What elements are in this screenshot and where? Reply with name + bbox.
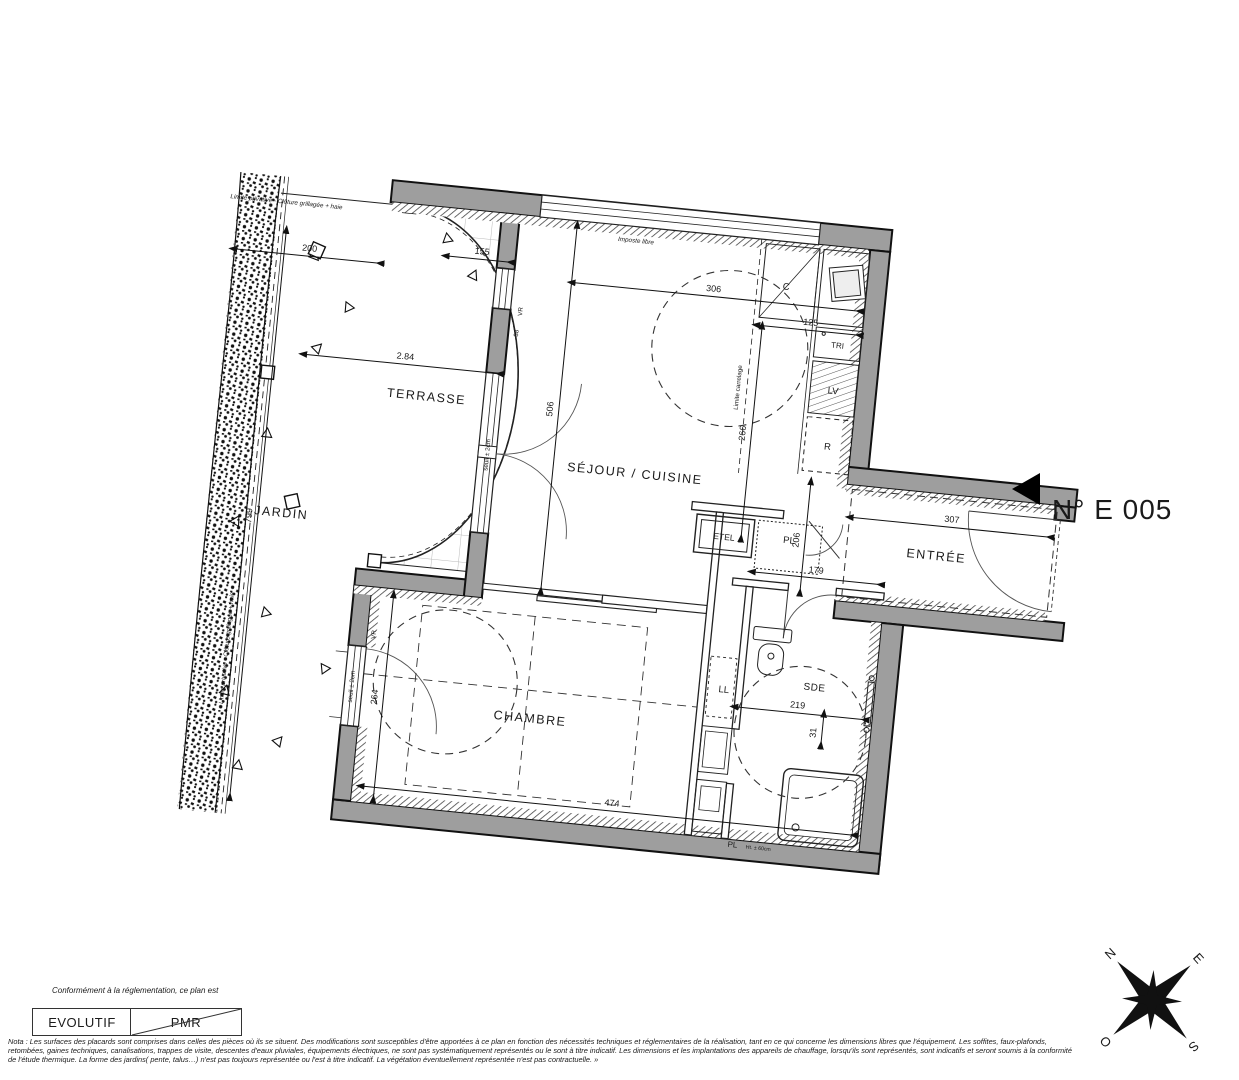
note-vr-sejour: VR (517, 306, 525, 316)
footnote-line-1: Nota : Les surfaces des placards sont co… (8, 1037, 1236, 1046)
dimension-lines (181, 193, 1079, 878)
room-label-chambre: CHAMBRE (493, 708, 567, 729)
compass-e: E (1190, 950, 1207, 967)
dim-266: 266 (737, 425, 748, 441)
closet-label-pl1: PL (783, 535, 796, 547)
chambre-dashed-layout (353, 600, 704, 812)
legend-pmr-label: PMR (171, 1015, 201, 1030)
sejour-window (493, 268, 515, 310)
footnote-line-2: retombées, gaines techniques, canalisati… (8, 1046, 1236, 1055)
kitchen-label-c: C (782, 281, 790, 293)
legend-caption: Conformément à la réglementation, ce pla… (52, 986, 218, 995)
dim-155: 155 (474, 246, 490, 257)
kitchen-label-r: R (823, 441, 831, 453)
dim-179: 179 (808, 564, 824, 575)
note-limite-carrelage: Limite carrelage (733, 364, 744, 410)
dim-219: 219 (790, 699, 806, 710)
sde-fixtures (692, 622, 879, 848)
compass-n: N (1102, 945, 1119, 962)
legend-evolutif-box: EVOLUTIF (32, 1008, 132, 1036)
legend-pmr-box: PMR (130, 1008, 242, 1036)
dim-200: 200 (302, 243, 318, 254)
footnote-line-3: de l'étude thermique. La forme des jardi… (8, 1055, 1236, 1064)
dim-264: 264 (369, 689, 380, 705)
dim-38: 38 (513, 329, 521, 337)
note-imposte-libre: Imposte libre (618, 236, 655, 247)
room-label-sejour: SÉJOUR / CUISINE (567, 459, 704, 487)
kitchen-label-tri: TRI (831, 341, 845, 351)
closet-label-pl2: PL (727, 840, 738, 850)
closet-label-etel: ETEL (713, 531, 735, 543)
dim-284: 2.84 (396, 350, 414, 362)
floorplan-drawing: 200 155 2.84 306 125 266 506 307 206 179… (0, 0, 1239, 1080)
chambre-sliding-door (482, 583, 707, 617)
dim-125: 125 (803, 317, 819, 328)
appliance-label-ll: LL (718, 684, 730, 696)
dim-307: 307 (944, 514, 960, 525)
floorplan-page: 200 155 2.84 306 125 266 506 307 206 179… (0, 0, 1239, 1080)
dim-474: 474 (604, 797, 620, 808)
room-label-terrasse: TERRASSE (386, 386, 466, 408)
room-label-entree: ENTRÉE (906, 545, 967, 566)
legend-evolutif-label: EVOLUTIF (48, 1015, 116, 1030)
room-label-jardin: JARDIN (254, 503, 309, 522)
insulation-hatch (333, 202, 1079, 868)
chambre-window (329, 644, 444, 734)
note-vr-chambre: VR (370, 629, 378, 639)
dim-31: 31 (808, 727, 819, 738)
garden-hedge-strip (177, 172, 288, 814)
dim-306: 306 (706, 283, 722, 294)
unit-marker: N° E 005 (1012, 473, 1172, 525)
kitchen-label-lv: LV (827, 385, 840, 397)
room-label-sde: SDE (803, 682, 826, 695)
unit-number: N° E 005 (1052, 494, 1172, 525)
dim-506: 506 (544, 401, 555, 417)
